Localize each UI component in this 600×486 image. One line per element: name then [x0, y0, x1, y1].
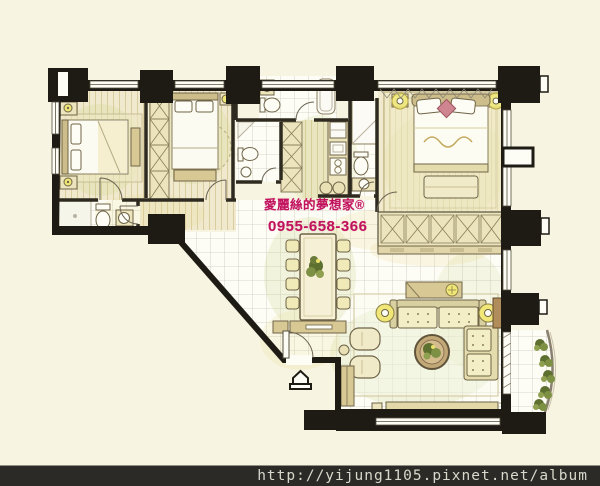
- floor-plan-image: 愛麗絲的夢想家® 0955-658-366 http://yijung1105.…: [0, 0, 600, 486]
- side-table: [339, 345, 349, 355]
- album-url: http://yijung1105.pixnet.net/album: [257, 468, 588, 484]
- balcony-sliding-door: [503, 332, 511, 394]
- dining-chair: [337, 259, 350, 271]
- dining-chair: [337, 278, 350, 290]
- toilet-tank: [96, 204, 110, 210]
- loveseat-cushion: [467, 354, 491, 376]
- foyer: [341, 366, 354, 406]
- stool: [333, 182, 345, 194]
- pillow: [71, 150, 81, 170]
- pillow: [450, 98, 475, 114]
- album-url-bar: http://yijung1105.pixnet.net/album: [0, 465, 600, 486]
- floor-plan: [0, 0, 600, 486]
- toilet-tank: [354, 152, 368, 157]
- entry-door-leaf: [283, 331, 289, 358]
- kitchen-sink: [330, 142, 346, 155]
- armchair: [350, 328, 380, 350]
- watermark-phone-number: 0955-658-366: [268, 218, 367, 235]
- foot-dresser: [174, 170, 216, 181]
- wardrobe: [150, 93, 169, 199]
- watermark-brand: 愛麗絲的夢想家®: [264, 194, 374, 213]
- toilet: [354, 157, 368, 175]
- column-window-notch: [58, 72, 68, 96]
- stool: [320, 182, 332, 194]
- wall-window-box: [503, 148, 533, 166]
- sofa-cushion: [398, 307, 437, 328]
- toilet: [264, 98, 280, 112]
- pillow: [196, 101, 213, 112]
- pillow: [175, 101, 192, 112]
- dining-chair: [286, 259, 299, 271]
- toilet: [242, 148, 258, 161]
- dining-chair: [286, 240, 299, 252]
- hall-closets: [281, 122, 302, 192]
- pillow: [416, 98, 441, 114]
- sofa-cushion: [439, 307, 478, 328]
- bedroom-1: [60, 102, 142, 189]
- sink: [241, 167, 251, 177]
- shower-stall: [352, 100, 376, 144]
- dining-chair: [286, 278, 299, 290]
- dining-chair: [337, 297, 350, 309]
- balcony: [511, 330, 556, 412]
- master-bedroom: [378, 92, 504, 254]
- pillow: [71, 124, 81, 144]
- dining-chair: [337, 240, 350, 252]
- living-room: [339, 282, 504, 411]
- bed-bench: [131, 128, 140, 166]
- master-bed: [414, 106, 488, 164]
- loveseat-cushion: [467, 329, 491, 351]
- footboard: [414, 164, 488, 172]
- sideboard-handle: [306, 325, 332, 329]
- dining-chair: [286, 297, 299, 309]
